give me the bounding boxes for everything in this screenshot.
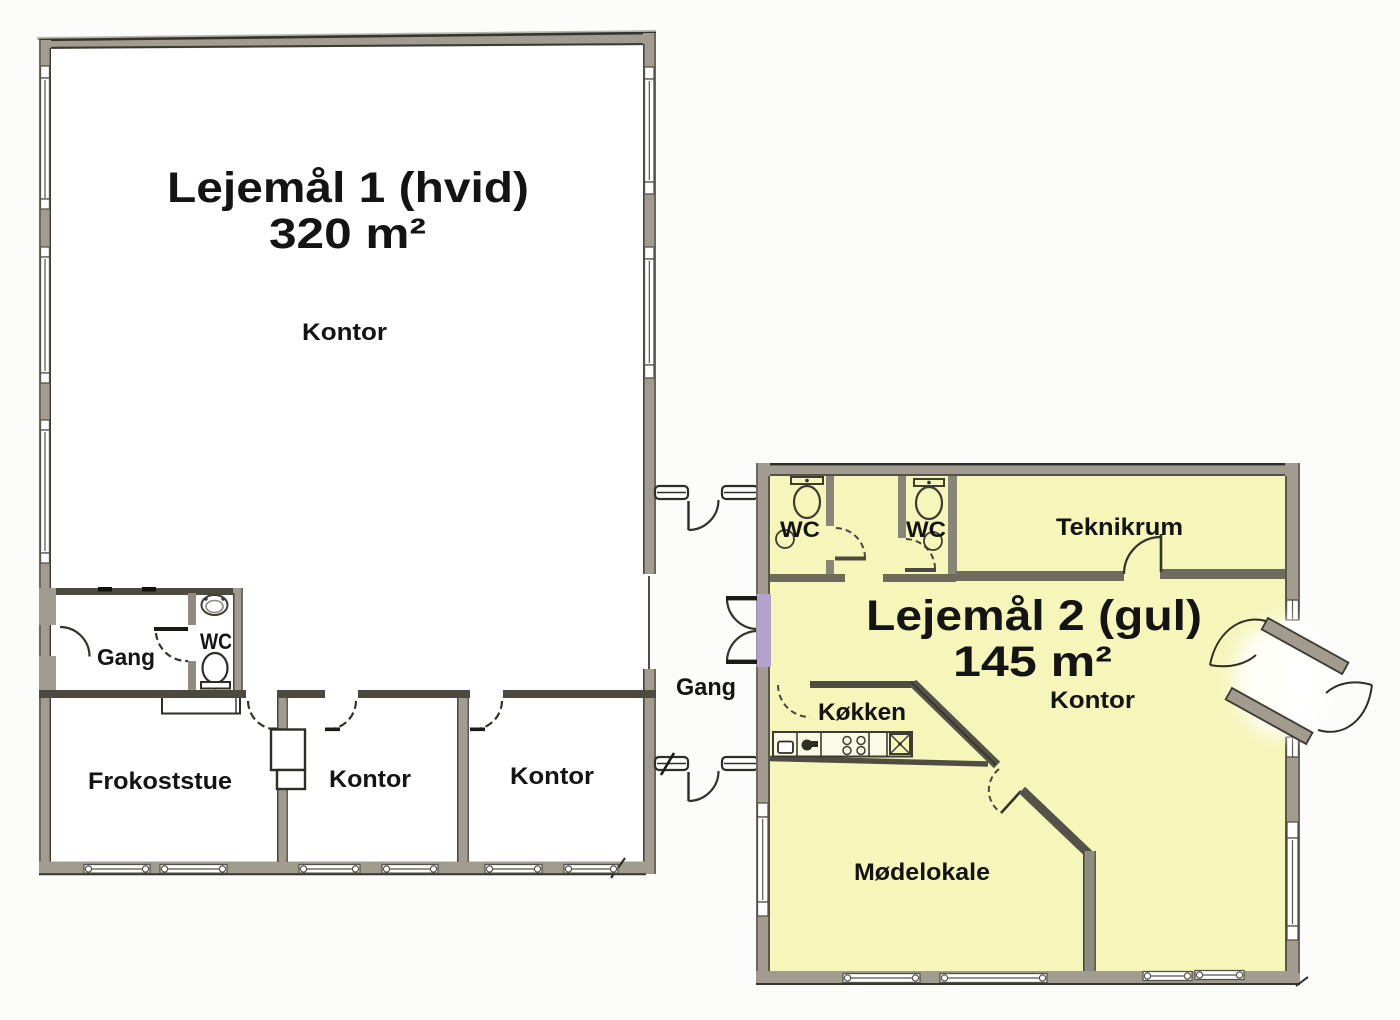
svg-text:Lejemål 2 (gul): Lejemål 2 (gul) — [866, 592, 1202, 640]
svg-text:WC: WC — [200, 629, 232, 654]
svg-text:320 m²: 320 m² — [269, 210, 426, 258]
svg-text:Kontor: Kontor — [1050, 687, 1135, 714]
svg-text:Kontor: Kontor — [329, 766, 411, 793]
svg-text:Kontor: Kontor — [302, 319, 387, 346]
svg-text:Mødelokale: Mødelokale — [854, 859, 990, 886]
svg-text:Gang: Gang — [676, 674, 736, 701]
svg-text:Kontor: Kontor — [510, 763, 594, 790]
svg-text:Teknikrum: Teknikrum — [1056, 514, 1183, 541]
svg-text:Gang: Gang — [97, 644, 155, 670]
svg-text:Frokoststue: Frokoststue — [88, 768, 232, 795]
svg-text:WC: WC — [780, 517, 820, 542]
svg-text:WC: WC — [906, 517, 946, 542]
svg-text:Lejemål 1 (hvid): Lejemål 1 (hvid) — [167, 164, 529, 212]
svg-text:145 m²: 145 m² — [953, 638, 1112, 686]
svg-text:Køkken: Køkken — [818, 699, 906, 726]
